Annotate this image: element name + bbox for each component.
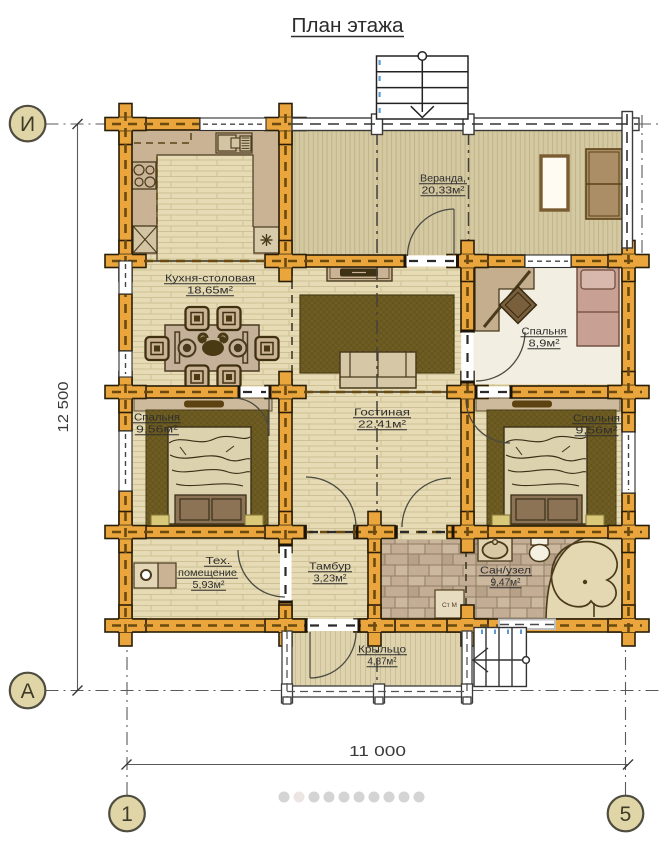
svg-text:И: И [20, 113, 35, 136]
svg-text:Сан/узел: Сан/узел [480, 566, 531, 577]
svg-text:1: 1 [121, 803, 133, 826]
svg-text:18,65м²: 18,65м² [187, 286, 234, 297]
svg-text:Ст М: Ст М [442, 602, 457, 609]
svg-text:20,33м²: 20,33м² [422, 186, 466, 197]
svg-text:3,23м²: 3,23м² [314, 574, 348, 585]
svg-text:Тамбур: Тамбур [309, 561, 351, 573]
svg-text:4,87м²: 4,87м² [368, 657, 398, 668]
svg-text:9,56м²: 9,56м² [576, 426, 619, 437]
svg-text:12 500: 12 500 [56, 382, 72, 433]
svg-text:Спальня: Спальня [573, 414, 620, 425]
svg-text:Кухня-столовая: Кухня-столовая [165, 274, 255, 285]
svg-text:Крыльцо: Крыльцо [358, 645, 406, 656]
svg-text:Тех.: Тех. [206, 556, 231, 567]
svg-text:5,93м²: 5,93м² [193, 580, 226, 591]
svg-text:22,41м²: 22,41м² [358, 420, 407, 431]
svg-text:План этажа: План этажа [292, 15, 405, 37]
svg-text:Веранда,: Веранда, [420, 174, 466, 185]
svg-text:А: А [21, 680, 35, 703]
svg-text:9,47м²: 9,47м² [491, 578, 522, 589]
svg-text:5: 5 [620, 803, 632, 826]
svg-text:помещение: помещение [178, 568, 237, 579]
svg-text:8,9м²: 8,9м² [529, 339, 561, 350]
svg-text:Спальня: Спальня [134, 413, 180, 424]
svg-text:Гостиная: Гостиная [354, 408, 410, 419]
svg-text:9,56м²: 9,56м² [136, 425, 179, 436]
svg-text:Спальня: Спальня [522, 327, 567, 338]
svg-text:11 000: 11 000 [349, 744, 406, 760]
